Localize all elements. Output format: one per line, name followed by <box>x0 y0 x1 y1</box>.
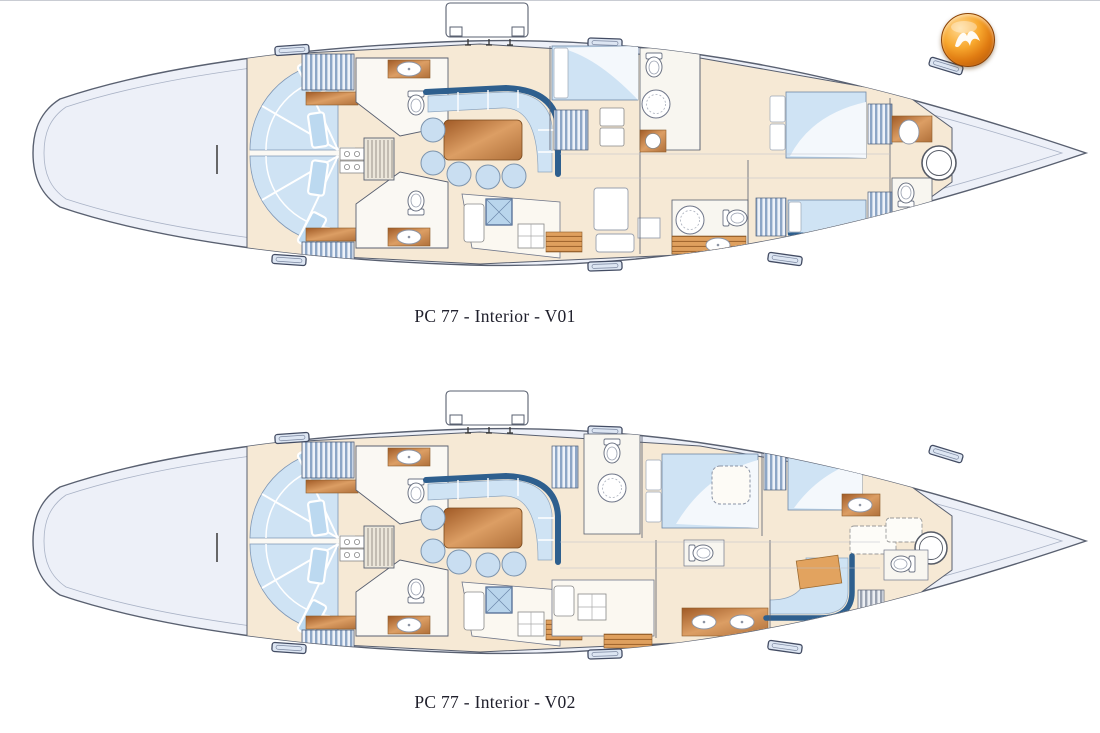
brand-logo <box>941 13 995 67</box>
plan-caption-v02: PC 77 - Interior - V02 <box>0 692 990 713</box>
interior-plan-v01 <box>0 2 1100 307</box>
interior-plan-v02 <box>0 390 1100 695</box>
scan-edge-line <box>0 0 1100 1</box>
scanned-page: { "document": { "type": "yacht-interior-… <box>0 0 1100 733</box>
brand-logo-swoosh-icon <box>942 14 994 66</box>
plan-caption-v01: PC 77 - Interior - V01 <box>0 306 990 327</box>
